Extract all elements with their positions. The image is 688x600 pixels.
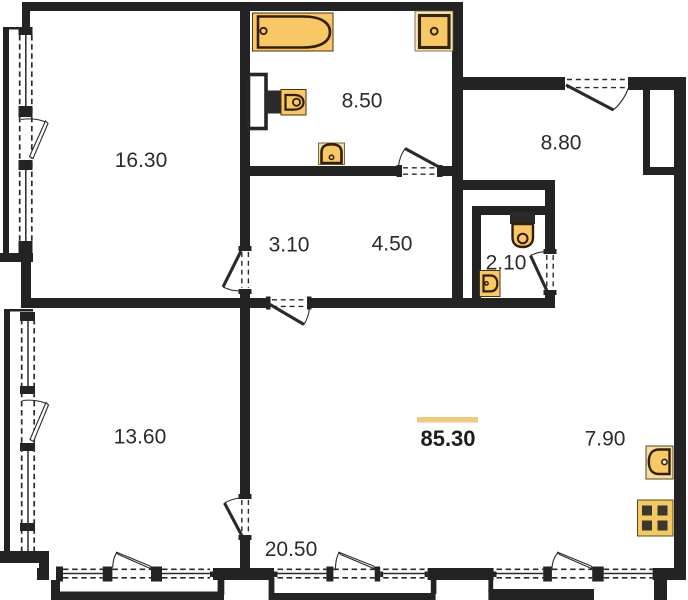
svg-text:85.30: 85.30 (420, 426, 475, 451)
svg-text:8.50: 8.50 (342, 90, 383, 113)
svg-text:7.90: 7.90 (585, 428, 626, 451)
svg-text:2.10: 2.10 (486, 252, 527, 275)
svg-text:8.80: 8.80 (541, 132, 582, 155)
svg-text:20.50: 20.50 (265, 538, 318, 561)
svg-text:13.60: 13.60 (114, 426, 167, 449)
svg-text:3.10: 3.10 (269, 234, 310, 257)
svg-text:16.30: 16.30 (115, 149, 168, 172)
svg-text:4.50: 4.50 (372, 233, 413, 256)
